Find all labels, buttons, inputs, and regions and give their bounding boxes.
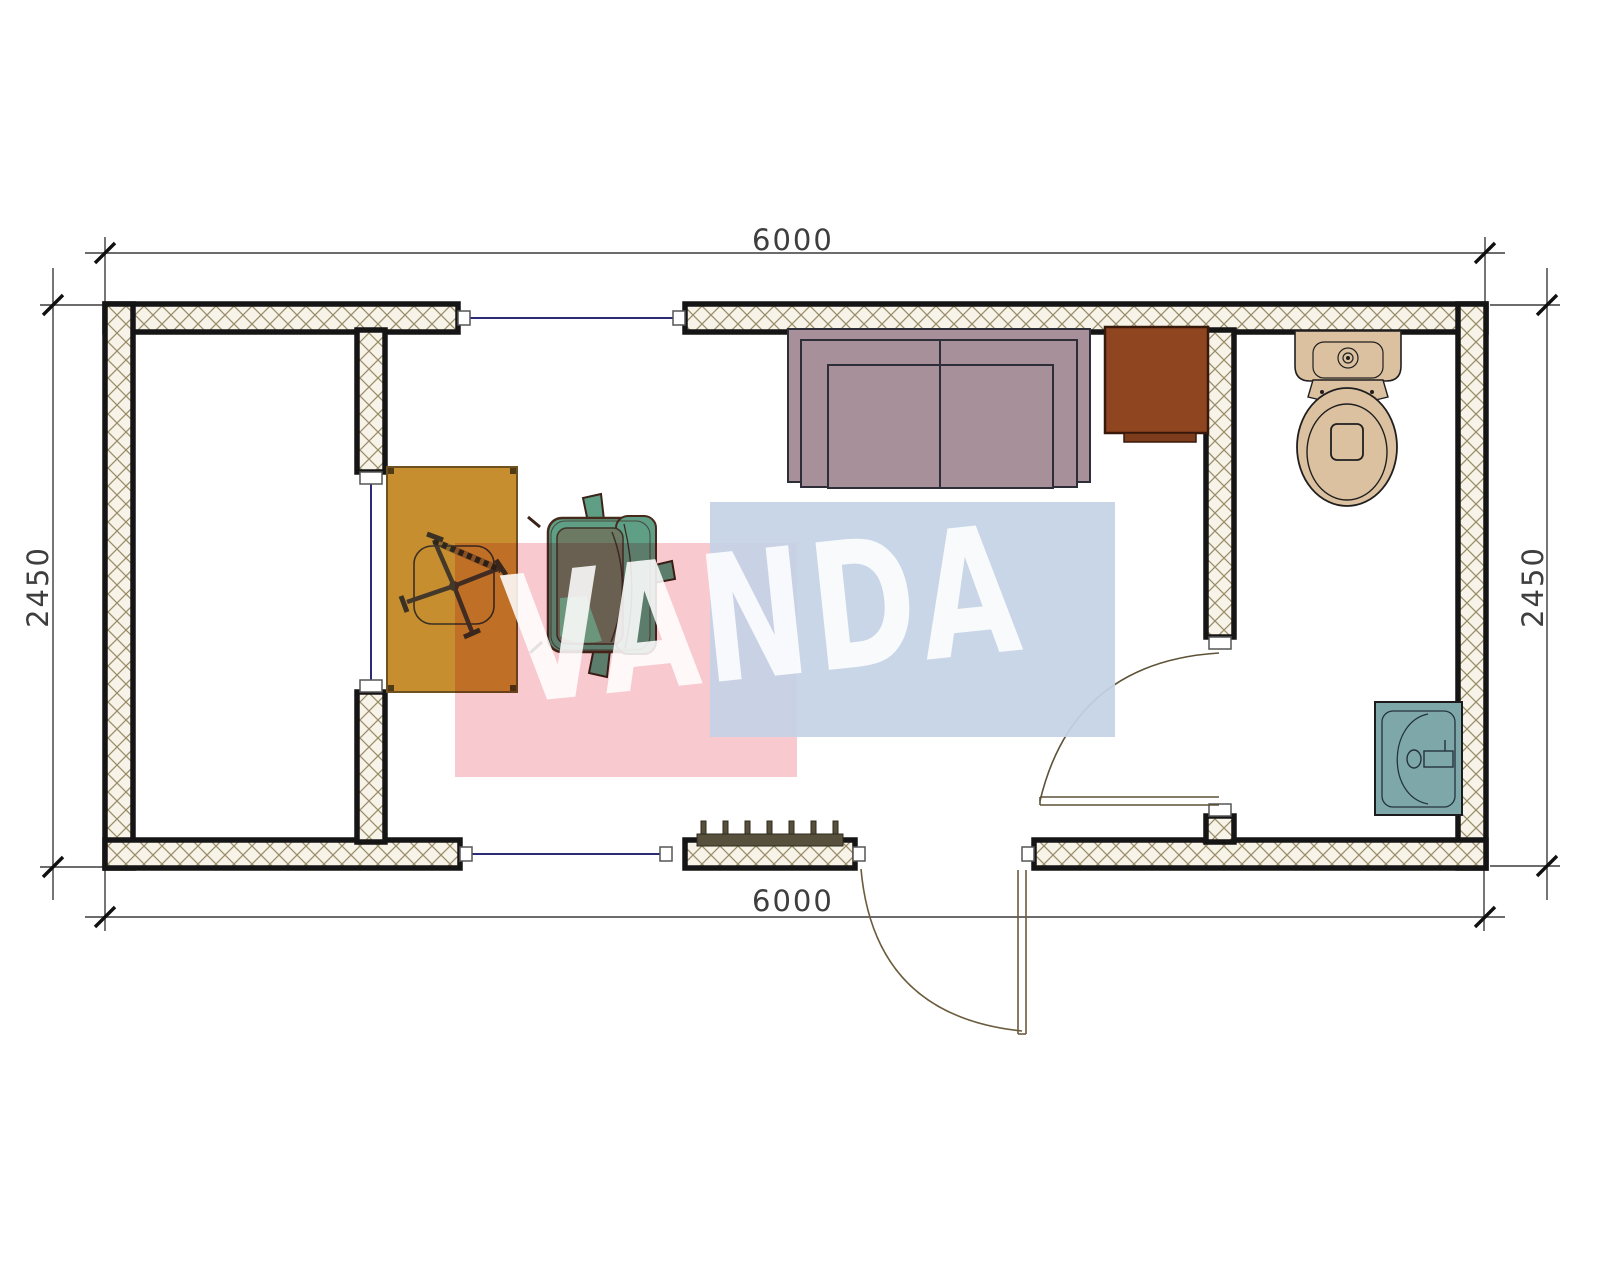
floor-plan-canvas: 6000 6000 2450 2450 VANDA xyxy=(0,0,1600,1280)
toilet xyxy=(1295,331,1401,506)
sofa xyxy=(788,329,1090,488)
wall-end-cap xyxy=(1022,847,1034,861)
wall-bottom-right-segment xyxy=(1034,840,1486,868)
wall-end-cap xyxy=(460,847,472,861)
entrance-door-swing-arc xyxy=(861,869,1022,1031)
dimension-label-right: 2450 xyxy=(1516,527,1550,647)
dimension-label-top: 6000 xyxy=(752,223,834,257)
sink xyxy=(1375,702,1462,815)
partition-left-top-stub xyxy=(357,330,385,472)
wall-end-cap xyxy=(360,680,382,692)
wall-left xyxy=(105,304,133,868)
dimension-label-bottom: 6000 xyxy=(752,884,834,918)
entrance-grate xyxy=(697,821,843,846)
partition-bathroom xyxy=(1206,330,1234,637)
cabinet xyxy=(1105,327,1208,442)
wall-end-cap xyxy=(853,847,865,861)
wall-end-cap xyxy=(673,311,685,325)
wall-end-cap xyxy=(1209,637,1231,649)
wall-bottom-left-segment xyxy=(105,840,460,868)
wall-end-cap xyxy=(458,311,470,325)
grate-bar xyxy=(697,834,843,846)
entrance-door xyxy=(861,869,1026,1034)
partition-bathroom-stub xyxy=(1206,816,1234,842)
dimension-label-left: 2450 xyxy=(21,527,55,647)
wall-end-cap xyxy=(660,847,672,861)
wall-end-cap xyxy=(360,472,382,484)
wall-top-left-segment xyxy=(105,304,458,332)
watermark-text: VANDA xyxy=(497,502,1031,731)
partition-left-bottom-stub xyxy=(357,692,385,842)
wall-top-right-segment xyxy=(685,304,1486,332)
